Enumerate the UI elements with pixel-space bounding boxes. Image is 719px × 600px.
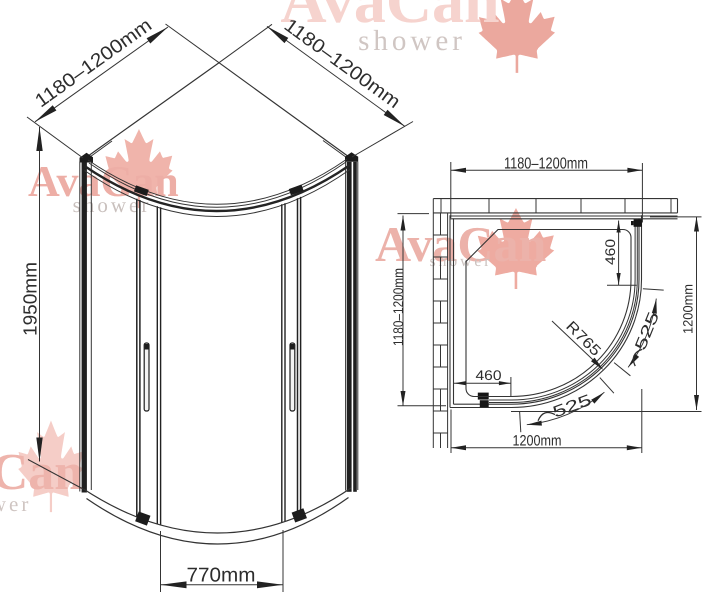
svg-text:460: 460 (476, 367, 502, 383)
svg-text:460: 460 (602, 239, 618, 265)
svg-text:770mm: 770mm (187, 565, 256, 587)
svg-text:shower: shower (358, 25, 466, 57)
svg-text:1200mm: 1200mm (681, 284, 696, 334)
svg-text:shower: shower (430, 253, 493, 270)
svg-text:1950mm: 1950mm (21, 262, 42, 336)
svg-text:1180–1200mm: 1180–1200mm (504, 156, 588, 173)
svg-text:1200mm: 1200mm (513, 433, 562, 450)
svg-text:shower: shower (0, 492, 31, 516)
svg-text:1180–1200mm: 1180–1200mm (390, 268, 406, 346)
